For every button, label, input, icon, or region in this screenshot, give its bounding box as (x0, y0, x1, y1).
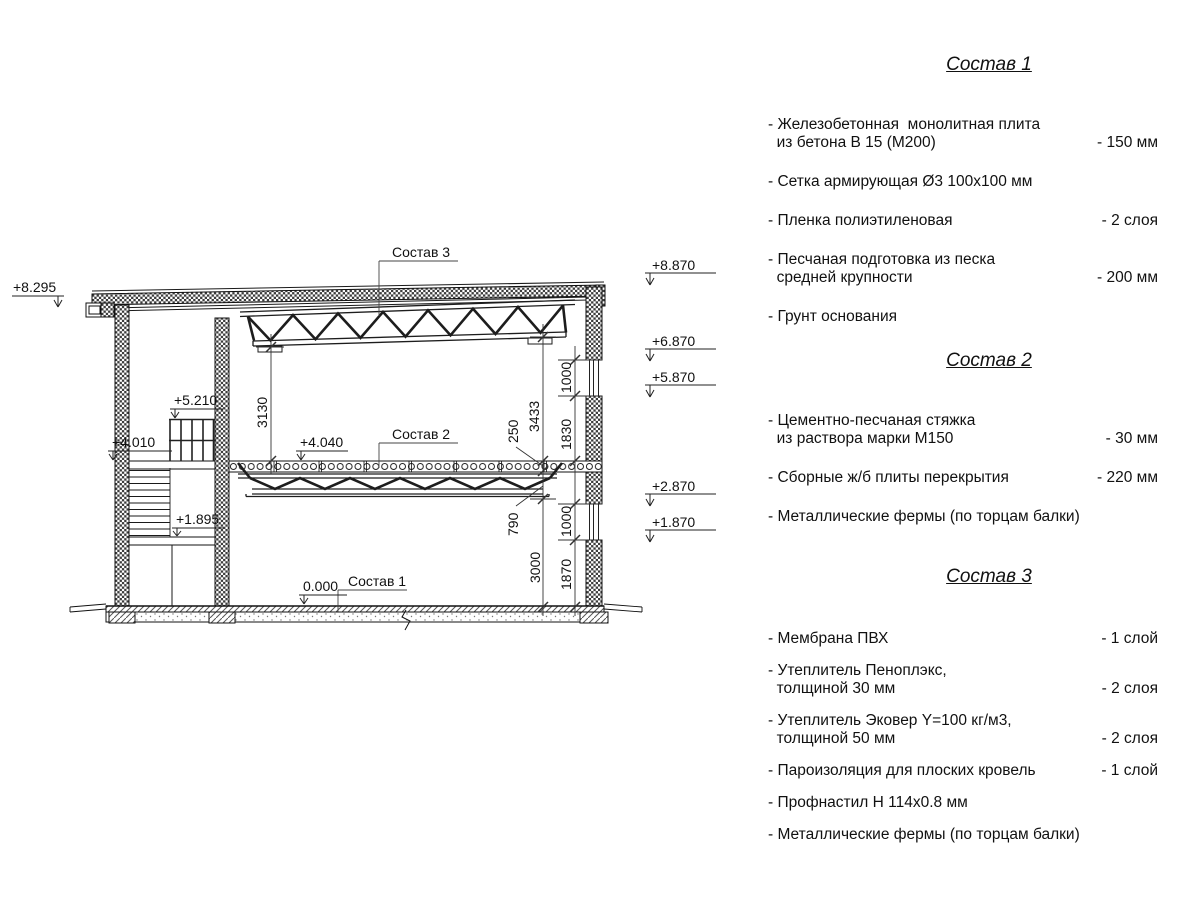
stair-railing (169, 419, 215, 461)
elevation-text: +4.010 (112, 434, 155, 450)
callout-sostav-1-label: Состав 1 (348, 573, 406, 589)
dim-3130: 3130 (254, 334, 284, 474)
layer-item: - Утеплитель Эковер Y=100 кг/м3, толщино… (768, 712, 1158, 748)
dim-text: 1000 (558, 506, 574, 537)
layer-name: - Металлические фермы (по торцам балки) (768, 508, 1152, 526)
layer-value: - 2 слоя (1096, 730, 1158, 748)
blind-area-left (70, 604, 106, 612)
layer-name: - Железобетонная монолитная плита из бет… (768, 116, 1091, 152)
elevation-text: +6.870 (652, 333, 695, 349)
window-upper (586, 360, 602, 396)
layer-item: - Профнастил Н 114х0.8 мм (768, 794, 1158, 812)
layer-item: - Утеплитель Пеноплэкс, толщиной 30 мм -… (768, 662, 1158, 698)
elevation-text: +5.870 (652, 369, 695, 385)
elevation-mark-8295: +8.295 (12, 279, 64, 307)
composition-1-block: Состав 1 - Железобетонная монолитная пли… (768, 54, 1158, 347)
left-wall (115, 305, 129, 607)
layer-value: - 2 слоя (1096, 212, 1158, 230)
elevation-mark-4040: +4.040 (296, 434, 348, 460)
layer-item: - Сборные ж/б плиты перекрытия - 220 мм (768, 469, 1158, 487)
layer-name: - Грунт основания (768, 308, 1152, 326)
stair-flight (129, 468, 170, 537)
dim-text: 1870 (558, 559, 574, 590)
elevation-mark-0000: 0.000 (299, 578, 347, 604)
layer-item: - Металлические фермы (по торцам балки) (768, 508, 1158, 526)
dim-text: 3000 (527, 552, 543, 583)
roof-cornice-left (86, 303, 114, 317)
elevation-text: +4.040 (300, 434, 343, 450)
composition-3-block: Состав 3 - Мембрана ПВХ - 1 слой - Утепл… (768, 566, 1158, 858)
dim-text: 1000 (558, 362, 574, 393)
composition-1-title: Состав 1 (820, 54, 1158, 76)
layer-value: - 200 мм (1091, 269, 1158, 287)
layer-item: - Грунт основания (768, 308, 1158, 326)
layer-item: - Мембрана ПВХ - 1 слой (768, 630, 1158, 648)
layer-name: - Утеплитель Пеноплэкс, толщиной 30 мм (768, 662, 1096, 698)
layer-item: - Пленка полиэтиленовая - 2 слоя (768, 212, 1158, 230)
layer-item: - Пароизоляция для плоских кровель - 1 с… (768, 762, 1158, 780)
layer-name: - Профнастил Н 114х0.8 мм (768, 794, 1152, 812)
elevation-text: +2.870 (652, 478, 695, 494)
layer-item: - Песчаная подготовка из песка средней к… (768, 251, 1158, 287)
dim-chain-outer: 1000 1830 1000 1870 (558, 346, 590, 616)
elevation-mark-8870: +8.870 (645, 257, 716, 285)
layer-value: - 30 мм (1100, 430, 1158, 448)
dim-text: 1830 (558, 419, 574, 450)
right-wall-mid (586, 396, 602, 504)
layer-value: - 1 слой (1095, 762, 1158, 780)
callout-sostav-2-label: Состав 2 (392, 426, 450, 442)
stair-inner-wall (215, 318, 229, 607)
blind-area-right (604, 604, 642, 612)
roof-assembly (86, 282, 605, 317)
layer-value: - 220 мм (1091, 469, 1158, 487)
layer-value: - 150 мм (1091, 134, 1158, 152)
layer-name: - Утеплитель Эковер Y=100 кг/м3, толщино… (768, 712, 1096, 748)
elevation-text: +8.295 (13, 279, 56, 295)
floor-truss-web (250, 478, 550, 489)
elevation-text: +8.870 (652, 257, 695, 273)
elevation-mark-1870: +1.870 (645, 514, 716, 542)
composition-2-block: Состав 2 - Цементно-песчаная стяжка из р… (768, 350, 1158, 547)
dim-text: 3130 (254, 397, 270, 428)
layer-name: - Металлические фермы (по торцам балки) (768, 826, 1152, 844)
layer-name: - Сборные ж/б плиты перекрытия (768, 469, 1091, 487)
landing-middle (129, 537, 215, 545)
right-wall-top (586, 287, 602, 360)
landing-upper (129, 461, 215, 469)
layer-item: - Сетка армирующая Ø3 100х100 мм (768, 173, 1158, 191)
composition-2-title: Состав 2 (820, 350, 1158, 372)
layer-name: - Сетка армирующая Ø3 100х100 мм (768, 173, 1152, 191)
dim-text: 790 (505, 512, 521, 536)
layer-name: - Цементно-песчаная стяжка из раствора м… (768, 412, 1100, 448)
layer-value: - 1 слой (1095, 630, 1158, 648)
elevation-text: +1.870 (652, 514, 695, 530)
layer-name: - Пленка полиэтиленовая (768, 212, 1096, 230)
layer-item: - Металлические фермы (по торцам балки) (768, 826, 1158, 844)
window-lower (586, 504, 602, 540)
layer-name: - Пароизоляция для плоских кровель (768, 762, 1095, 780)
floor-slab (229, 461, 602, 472)
elevation-text: 0.000 (303, 578, 338, 594)
ground-floor (70, 604, 642, 630)
callout-sostav-3-label: Состав 3 (392, 244, 450, 260)
layer-name: - Песчаная подготовка из песка средней к… (768, 251, 1091, 287)
layer-item: - Железобетонная монолитная плита из бет… (768, 116, 1158, 152)
layer-value: - 2 слоя (1096, 680, 1158, 698)
dim-text: 250 (505, 419, 521, 443)
composition-3-title: Состав 3 (820, 566, 1158, 588)
elevation-mark-5870: +5.870 (645, 369, 716, 397)
elevation-mark-2870: +2.870 (645, 478, 716, 506)
layer-item: - Цементно-песчаная стяжка из раствора м… (768, 412, 1158, 448)
dim-text: 3433 (526, 401, 542, 432)
layer-name: - Мембрана ПВХ (768, 630, 1095, 648)
elevation-mark-6870: +6.870 (645, 333, 716, 361)
elevation-text: +1.895 (176, 511, 219, 527)
elevation-text: +5.210 (174, 392, 217, 408)
right-wall-bottom (586, 540, 602, 607)
roof-truss (240, 300, 575, 352)
